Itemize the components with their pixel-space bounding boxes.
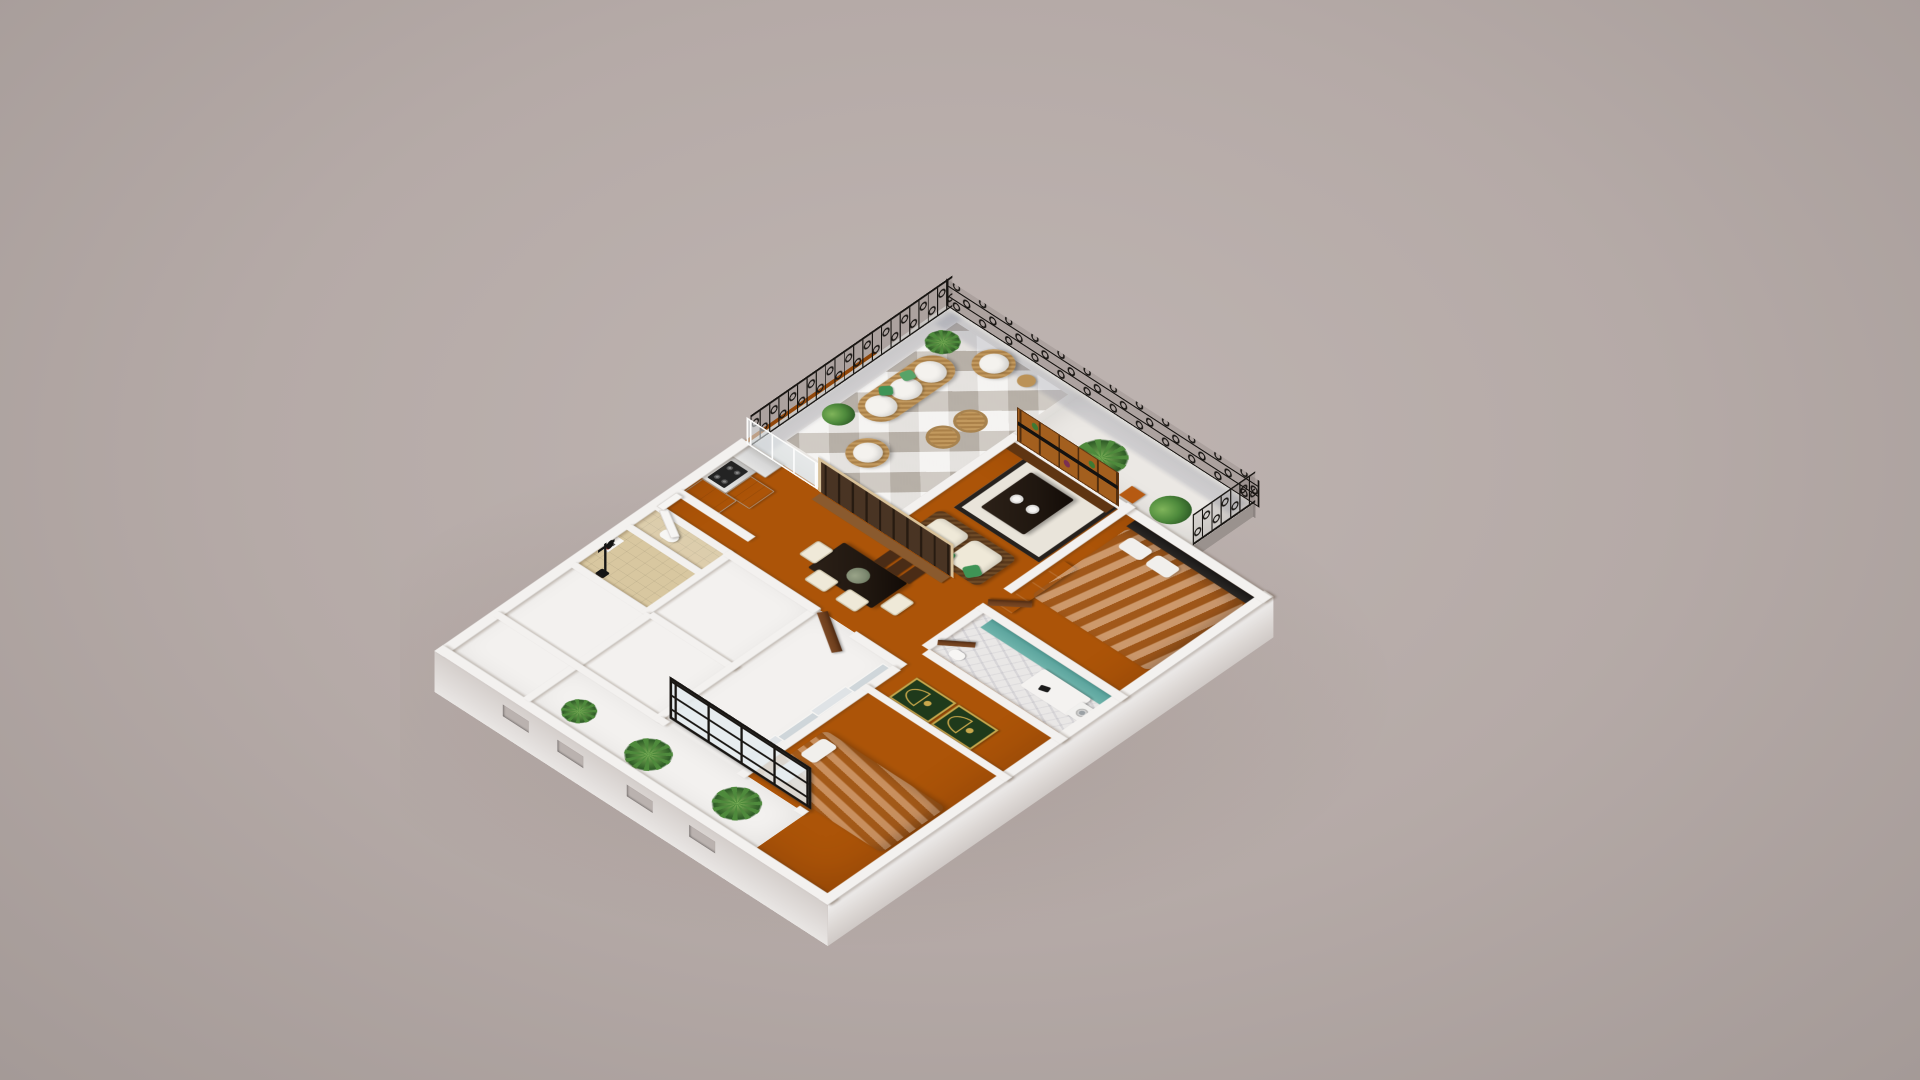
floorplan-viewport[interactable] [0, 0, 1920, 1080]
bowl [1023, 503, 1042, 516]
